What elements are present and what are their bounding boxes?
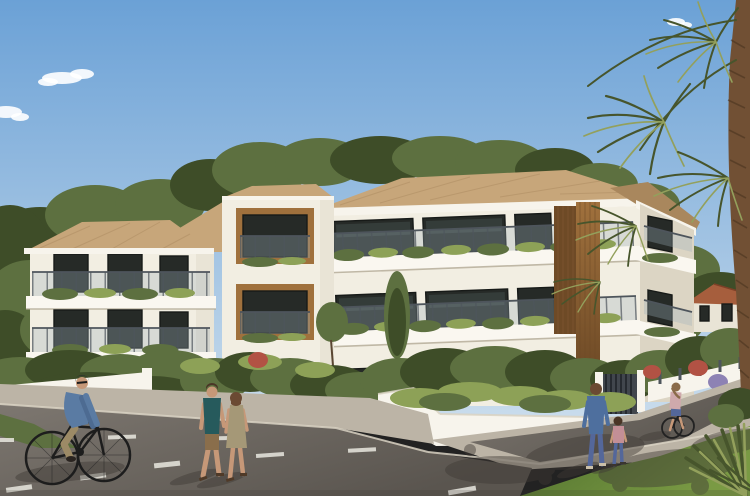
architectural-render bbox=[0, 0, 750, 496]
timber-slat-panel bbox=[554, 206, 576, 334]
red-shrub bbox=[248, 352, 268, 368]
render-canvas bbox=[0, 0, 750, 496]
central-tower bbox=[222, 184, 334, 382]
loggia-lower bbox=[236, 284, 314, 343]
loggia-upper bbox=[236, 208, 314, 267]
